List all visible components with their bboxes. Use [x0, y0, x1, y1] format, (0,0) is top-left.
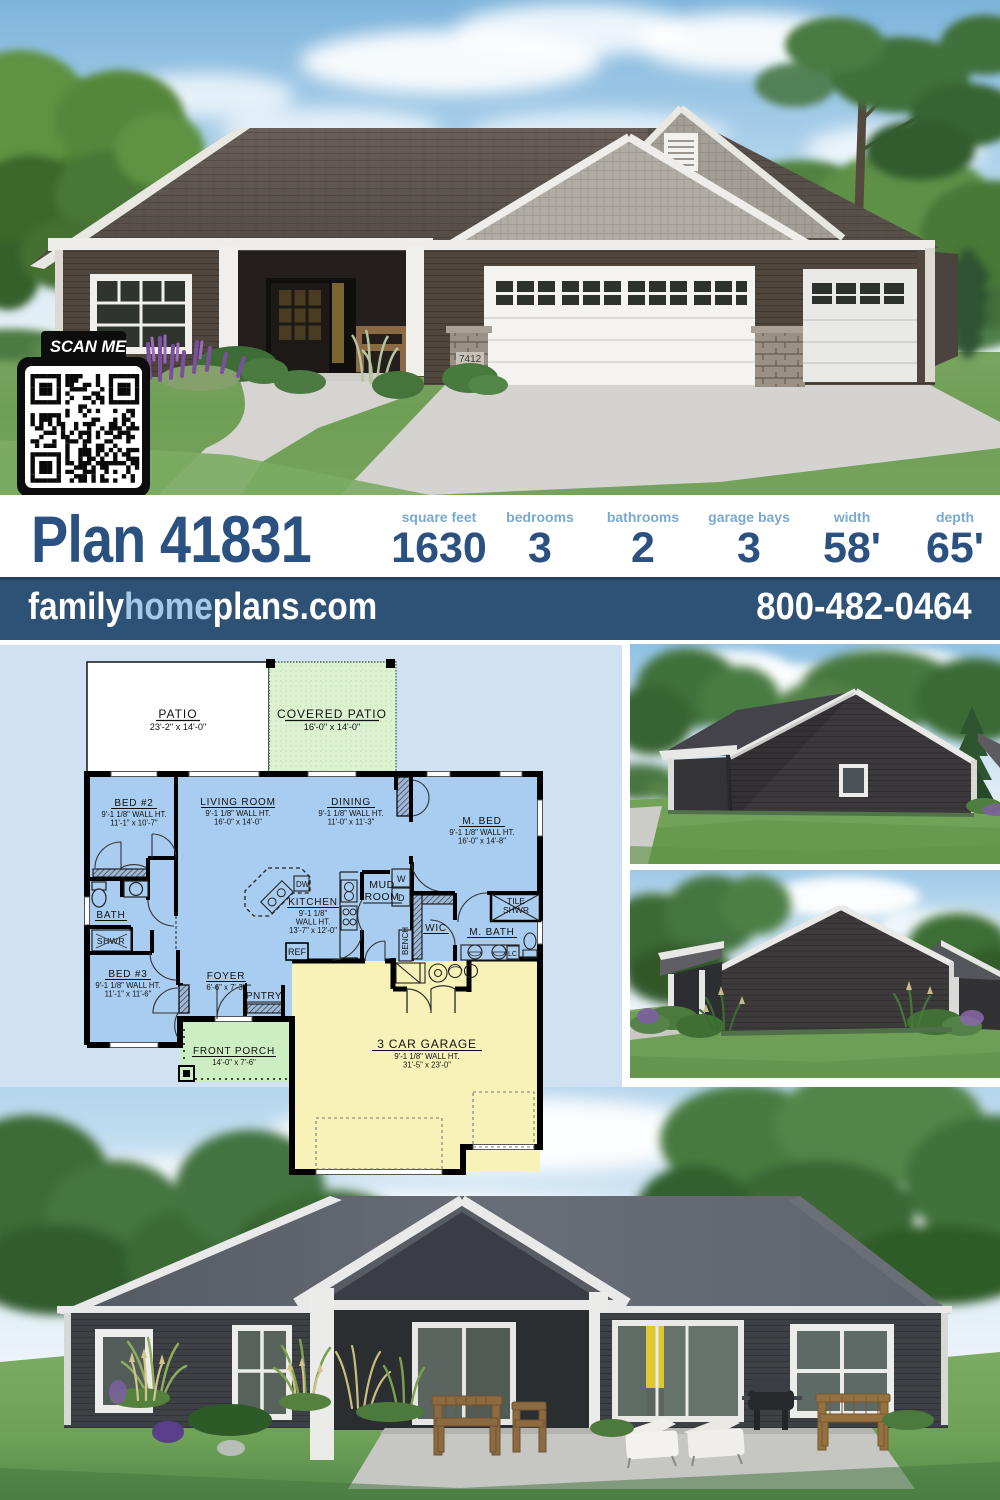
svg-text:11'-1" x 10'-7": 11'-1" x 10'-7"	[110, 819, 158, 828]
svg-text:BENCH: BENCH	[401, 927, 410, 955]
svg-text:M. BED: M. BED	[462, 816, 501, 827]
svg-text:W: W	[397, 874, 406, 884]
svg-text:BED #3: BED #3	[108, 969, 147, 980]
svg-text:LIVING ROOM: LIVING ROOM	[200, 797, 275, 808]
svg-text:WIC: WIC	[425, 923, 447, 934]
svg-text:SHWR: SHWR	[503, 905, 529, 915]
svg-text:16'-0" x 14'-8": 16'-0" x 14'-8"	[458, 837, 506, 846]
svg-text:13'-7" x 12'-0": 13'-7" x 12'-0"	[289, 926, 337, 935]
svg-text:FRONT PORCH: FRONT PORCH	[193, 1046, 275, 1057]
svg-text:31'-5" x 23'-0": 31'-5" x 23'-0"	[403, 1061, 451, 1070]
svg-text:16'-0" x 14'-0": 16'-0" x 14'-0"	[304, 722, 361, 732]
svg-text:16'-0" x 14'-0": 16'-0" x 14'-0"	[214, 818, 262, 827]
svg-text:PNTRY: PNTRY	[246, 991, 282, 1002]
svg-text:DW: DW	[296, 880, 310, 889]
svg-text:6'-6" x 7'-3": 6'-6" x 7'-3"	[206, 983, 246, 992]
svg-text:3 CAR GARAGE: 3 CAR GARAGE	[377, 1037, 477, 1051]
svg-text:FOYER: FOYER	[207, 971, 245, 982]
svg-text:ROOM: ROOM	[365, 891, 400, 903]
svg-text:REF: REF	[288, 947, 307, 957]
svg-text:COVERED PATIO: COVERED PATIO	[277, 707, 387, 721]
svg-text:LC: LC	[508, 951, 517, 958]
svg-text:M. BATH: M. BATH	[469, 927, 514, 938]
svg-text:11'-1" x 11'-6": 11'-1" x 11'-6"	[105, 990, 152, 999]
svg-text:SCAN ME: SCAN ME	[50, 338, 127, 356]
svg-text:MUD: MUD	[369, 879, 394, 891]
svg-text:KITCHEN: KITCHEN	[288, 897, 338, 908]
svg-text:BATH: BATH	[96, 910, 125, 921]
svg-text:11'-0" x 11'-3": 11'-0" x 11'-3"	[328, 818, 375, 827]
svg-text:23'-2" x 14'-0": 23'-2" x 14'-0"	[150, 722, 207, 732]
svg-text:DINING: DINING	[331, 797, 371, 808]
svg-text:PATIO: PATIO	[158, 707, 197, 721]
svg-text:BED #2: BED #2	[114, 798, 153, 809]
svg-text:14'-0" x 7'-6": 14'-0" x 7'-6"	[212, 1058, 256, 1067]
